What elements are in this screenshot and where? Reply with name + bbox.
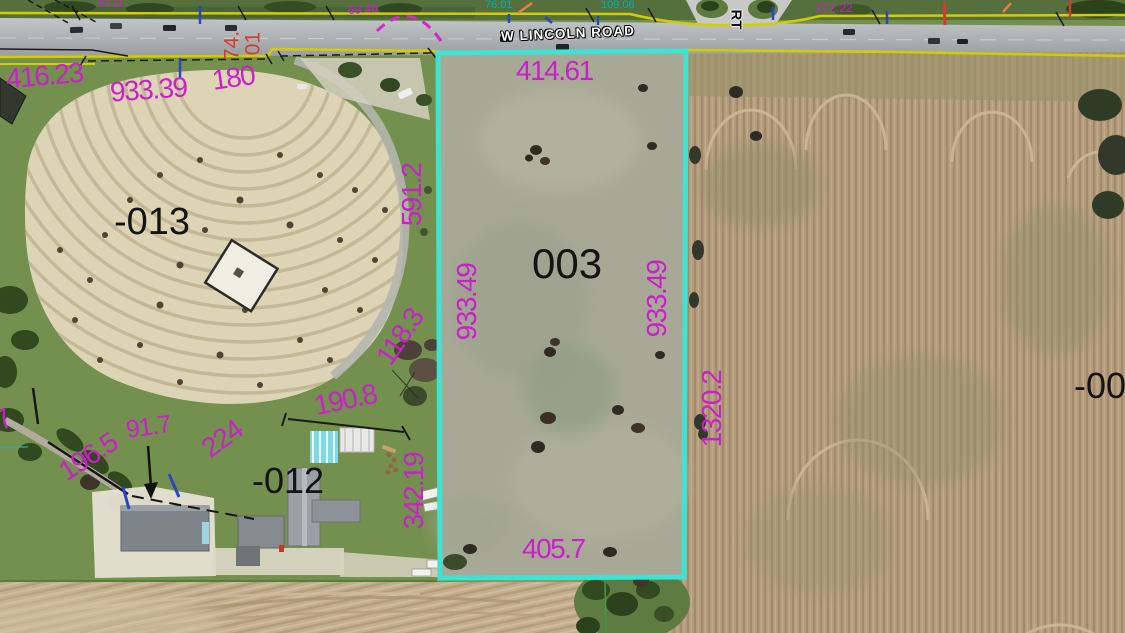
small-label-8211: 8211 <box>98 0 124 8</box>
parcel-id-farmstead: -012 <box>252 463 324 499</box>
dim-label-342-19: 342.19 <box>400 443 428 539</box>
dim-label-591-2: 591.2 <box>398 155 426 235</box>
cross-street-label: RT <box>729 10 744 30</box>
small-label-272-22: 272.22 <box>816 2 853 14</box>
dim-label-north-414-61: 414.61 <box>516 57 593 85</box>
small-label-109-06: 109.06 <box>601 0 635 11</box>
dim-label-91-7: 91.7 <box>124 412 172 443</box>
dim-label-74-part2: 01 <box>243 31 264 57</box>
parcel-id-east-partial: -00 <box>1074 368 1125 404</box>
aerial-map-view[interactable]: 416.23 933.39 180 74. 01 414.61 591.2 93… <box>0 0 1125 633</box>
north-roadside <box>0 0 1125 20</box>
dim-label-west-933-49: 933.49 <box>453 255 481 349</box>
dim-label-180: 180 <box>210 61 256 95</box>
dim-label-east-933-49: 933.49 <box>643 252 671 346</box>
dim-label-south-405-7: 405.7 <box>522 535 585 563</box>
parcel-id-subject: 003 <box>532 243 602 285</box>
dim-label-1320-2: 1320.2 <box>698 361 726 457</box>
south-field <box>0 582 606 633</box>
parcel-id-drive-in: -013 <box>114 203 190 241</box>
barn <box>121 506 209 551</box>
dim-label-416-23: 416.23 <box>5 59 84 94</box>
dim-label-74-part1: 74. <box>222 26 243 66</box>
small-label-69-46: 69.46 <box>348 2 379 17</box>
house <box>238 516 284 548</box>
dim-label-933-39: 933.39 <box>109 73 187 106</box>
red-object <box>279 545 284 552</box>
small-label-76-01: 76.01 <box>485 0 513 11</box>
